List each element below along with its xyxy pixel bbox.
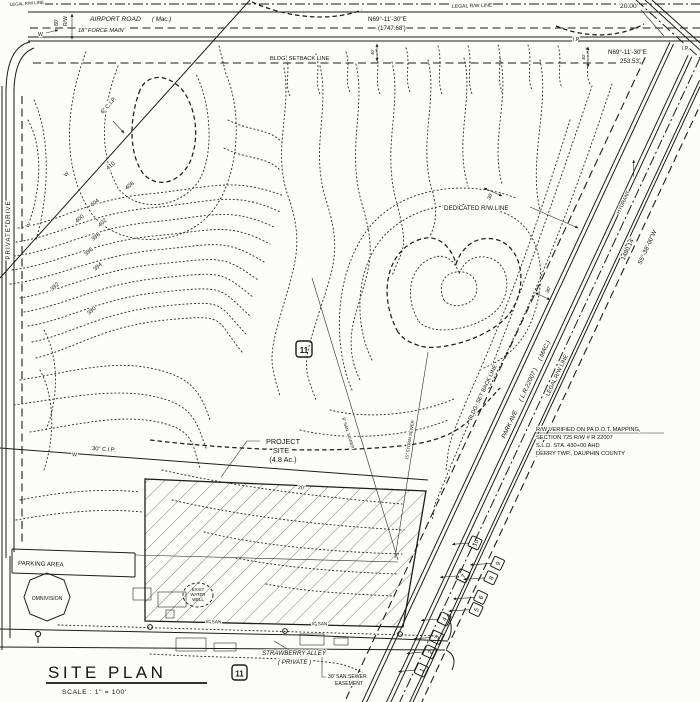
san-lateral-label: 8" SAN. SEWER xyxy=(341,417,355,449)
project-site-hatch xyxy=(145,479,426,627)
airport-road-surface-label: ( Mac.) xyxy=(152,16,171,23)
san8-label-a: 8" SAN xyxy=(206,619,221,625)
contour-label-404: 404 xyxy=(90,198,101,209)
contour-label-402: 402 xyxy=(97,218,108,229)
manhole xyxy=(283,629,288,634)
contour-labels: 410 408 404 402 400 398 396 394 392 390 xyxy=(49,161,135,317)
bearing1-label: N69°-11'-30"E xyxy=(368,16,407,23)
rw-abbrev-label: R/W xyxy=(63,16,69,26)
parking-area-label: PARKING AREA xyxy=(18,560,65,569)
airport-road-label: AIRPORT ROAD xyxy=(89,16,141,23)
legal-rw-corner-label: LEGAL R/W LINE xyxy=(10,0,44,7)
dedicated-rw-label: DEDICATED R/W LINE xyxy=(444,205,509,212)
svg-text:6: 6 xyxy=(478,594,486,601)
w-marker-3: W xyxy=(72,452,77,458)
distance2-label: 253.53' xyxy=(620,58,640,65)
w-marker-2: W xyxy=(25,222,33,230)
rw-note-line1: R/W VERIFIED ON PA D.O.T. MAPPING, xyxy=(536,427,641,433)
strawberry-alley-note: ( PRIVATE ) xyxy=(278,659,311,666)
setback-top-label: BLDG. SETBACK LINE xyxy=(270,56,330,62)
park-distance-label: 1480.14' xyxy=(620,237,636,261)
park-legal-rw-line xyxy=(391,22,700,702)
title-block: SITE PLAN SCALE : 1" = 100' xyxy=(46,663,207,696)
airport-road xyxy=(6,0,700,90)
park-legal-rw-label: LEGAL R/W LINE xyxy=(545,354,570,397)
strawberry-alley-label: STRAWBERRY ALLEY xyxy=(262,650,327,657)
contour-label-408: 408 xyxy=(124,181,135,192)
contour-label-394: 394 xyxy=(92,262,103,273)
hydrant-label: HYDRANT xyxy=(616,190,632,215)
svg-text:8: 8 xyxy=(488,575,496,582)
pipe6-label: 6" C.I.P. xyxy=(100,96,118,115)
force-main-label: 18" FORCE MAIN xyxy=(78,28,125,34)
rw-width-label: 80' xyxy=(54,19,60,26)
dim20-label: 20' xyxy=(298,485,305,491)
well-label-3: WELL xyxy=(192,597,204,602)
site-plan-drawing: BLDG. SET BACK LINE PARK AVE.( L.R.22007… xyxy=(0,0,700,702)
manhole xyxy=(148,625,153,630)
dim30b-label: 30' xyxy=(486,192,494,201)
park-setback-dim-label: 30' xyxy=(545,286,553,295)
lot-marker-9: 9 xyxy=(470,548,505,577)
rw-note-line2: SECTION 725 R/W # R 22007 xyxy=(536,435,613,441)
private-drive-label: PRIVATE DRIVE xyxy=(5,200,12,259)
building xyxy=(214,643,236,651)
ip-marker-2: I.P. xyxy=(682,46,689,52)
w-marker-1: W xyxy=(63,171,71,179)
sheet-title: SITE PLAN xyxy=(48,663,166,682)
contour-label-410: 410 xyxy=(105,161,116,172)
pipe30-label: 30" C.I.P. xyxy=(92,446,116,454)
project-site-label-1: PROJECT xyxy=(266,437,301,446)
hydrant-symbol xyxy=(35,631,40,636)
pipe-6-cip-line xyxy=(0,0,250,278)
building xyxy=(176,638,206,651)
san8-label-b: 8" SAN xyxy=(312,621,327,627)
water-marker-top: W xyxy=(38,32,43,38)
parcel-marker-box-2: 11 xyxy=(232,665,247,680)
svg-text:11: 11 xyxy=(300,346,309,355)
svg-text:9: 9 xyxy=(495,560,503,567)
svg-text:5: 5 xyxy=(473,606,481,613)
contour-label-392: 392 xyxy=(49,282,60,293)
building xyxy=(334,638,348,645)
ip-marker-1: I.P xyxy=(573,37,580,43)
r w-note-line4: DERRY TWP., DAUPHIN COUNTY xyxy=(536,451,625,457)
contour-label-396: 396 xyxy=(83,247,94,258)
lot-marker-7: 7 xyxy=(440,562,470,588)
park-setback-line xyxy=(346,53,647,699)
park-setback-label: BLDG. SET BACK LINE xyxy=(468,364,499,422)
pipe-30-cip-line xyxy=(0,448,428,480)
contour-label-390: 390 xyxy=(86,306,97,317)
easement-label-1: 30' SAN.SEWER xyxy=(328,674,367,680)
svg-text:11: 11 xyxy=(235,670,244,679)
dim40b-label: 40' xyxy=(581,54,586,60)
project-site-label-2: SITE xyxy=(273,446,289,455)
contour-label-398: 398 xyxy=(90,232,101,243)
rw-note-line3: S.L.D. STA. 430+00 AHD xyxy=(536,443,600,449)
site-plan-sheet: BLDG. SET BACK LINE PARK AVE.( L.R.22007… xyxy=(0,0,700,702)
legal-rw-top-label: LEGAL R/W LINE xyxy=(452,3,493,10)
bearing2-label: N69°-11'-30"E xyxy=(608,49,647,56)
parcel-marker-box: 11 xyxy=(296,341,312,357)
project-site-area xyxy=(0,448,428,627)
omnivision-label: OMNIVISION xyxy=(32,596,63,602)
offset-label: 20.00' xyxy=(620,3,638,10)
distance1-label: (1747.68') xyxy=(378,25,406,32)
storm-sewer-label: 15" STORM SEWER xyxy=(404,420,415,460)
easement-label-2: EASEMENT xyxy=(335,681,363,687)
project-site-label-3: (4.8 Ac.) xyxy=(269,455,296,464)
sheet-scale: SCALE : 1" = 100' xyxy=(62,689,127,696)
dim40a-label: 40' xyxy=(370,49,375,55)
contour-label-400: 400 xyxy=(74,214,85,225)
